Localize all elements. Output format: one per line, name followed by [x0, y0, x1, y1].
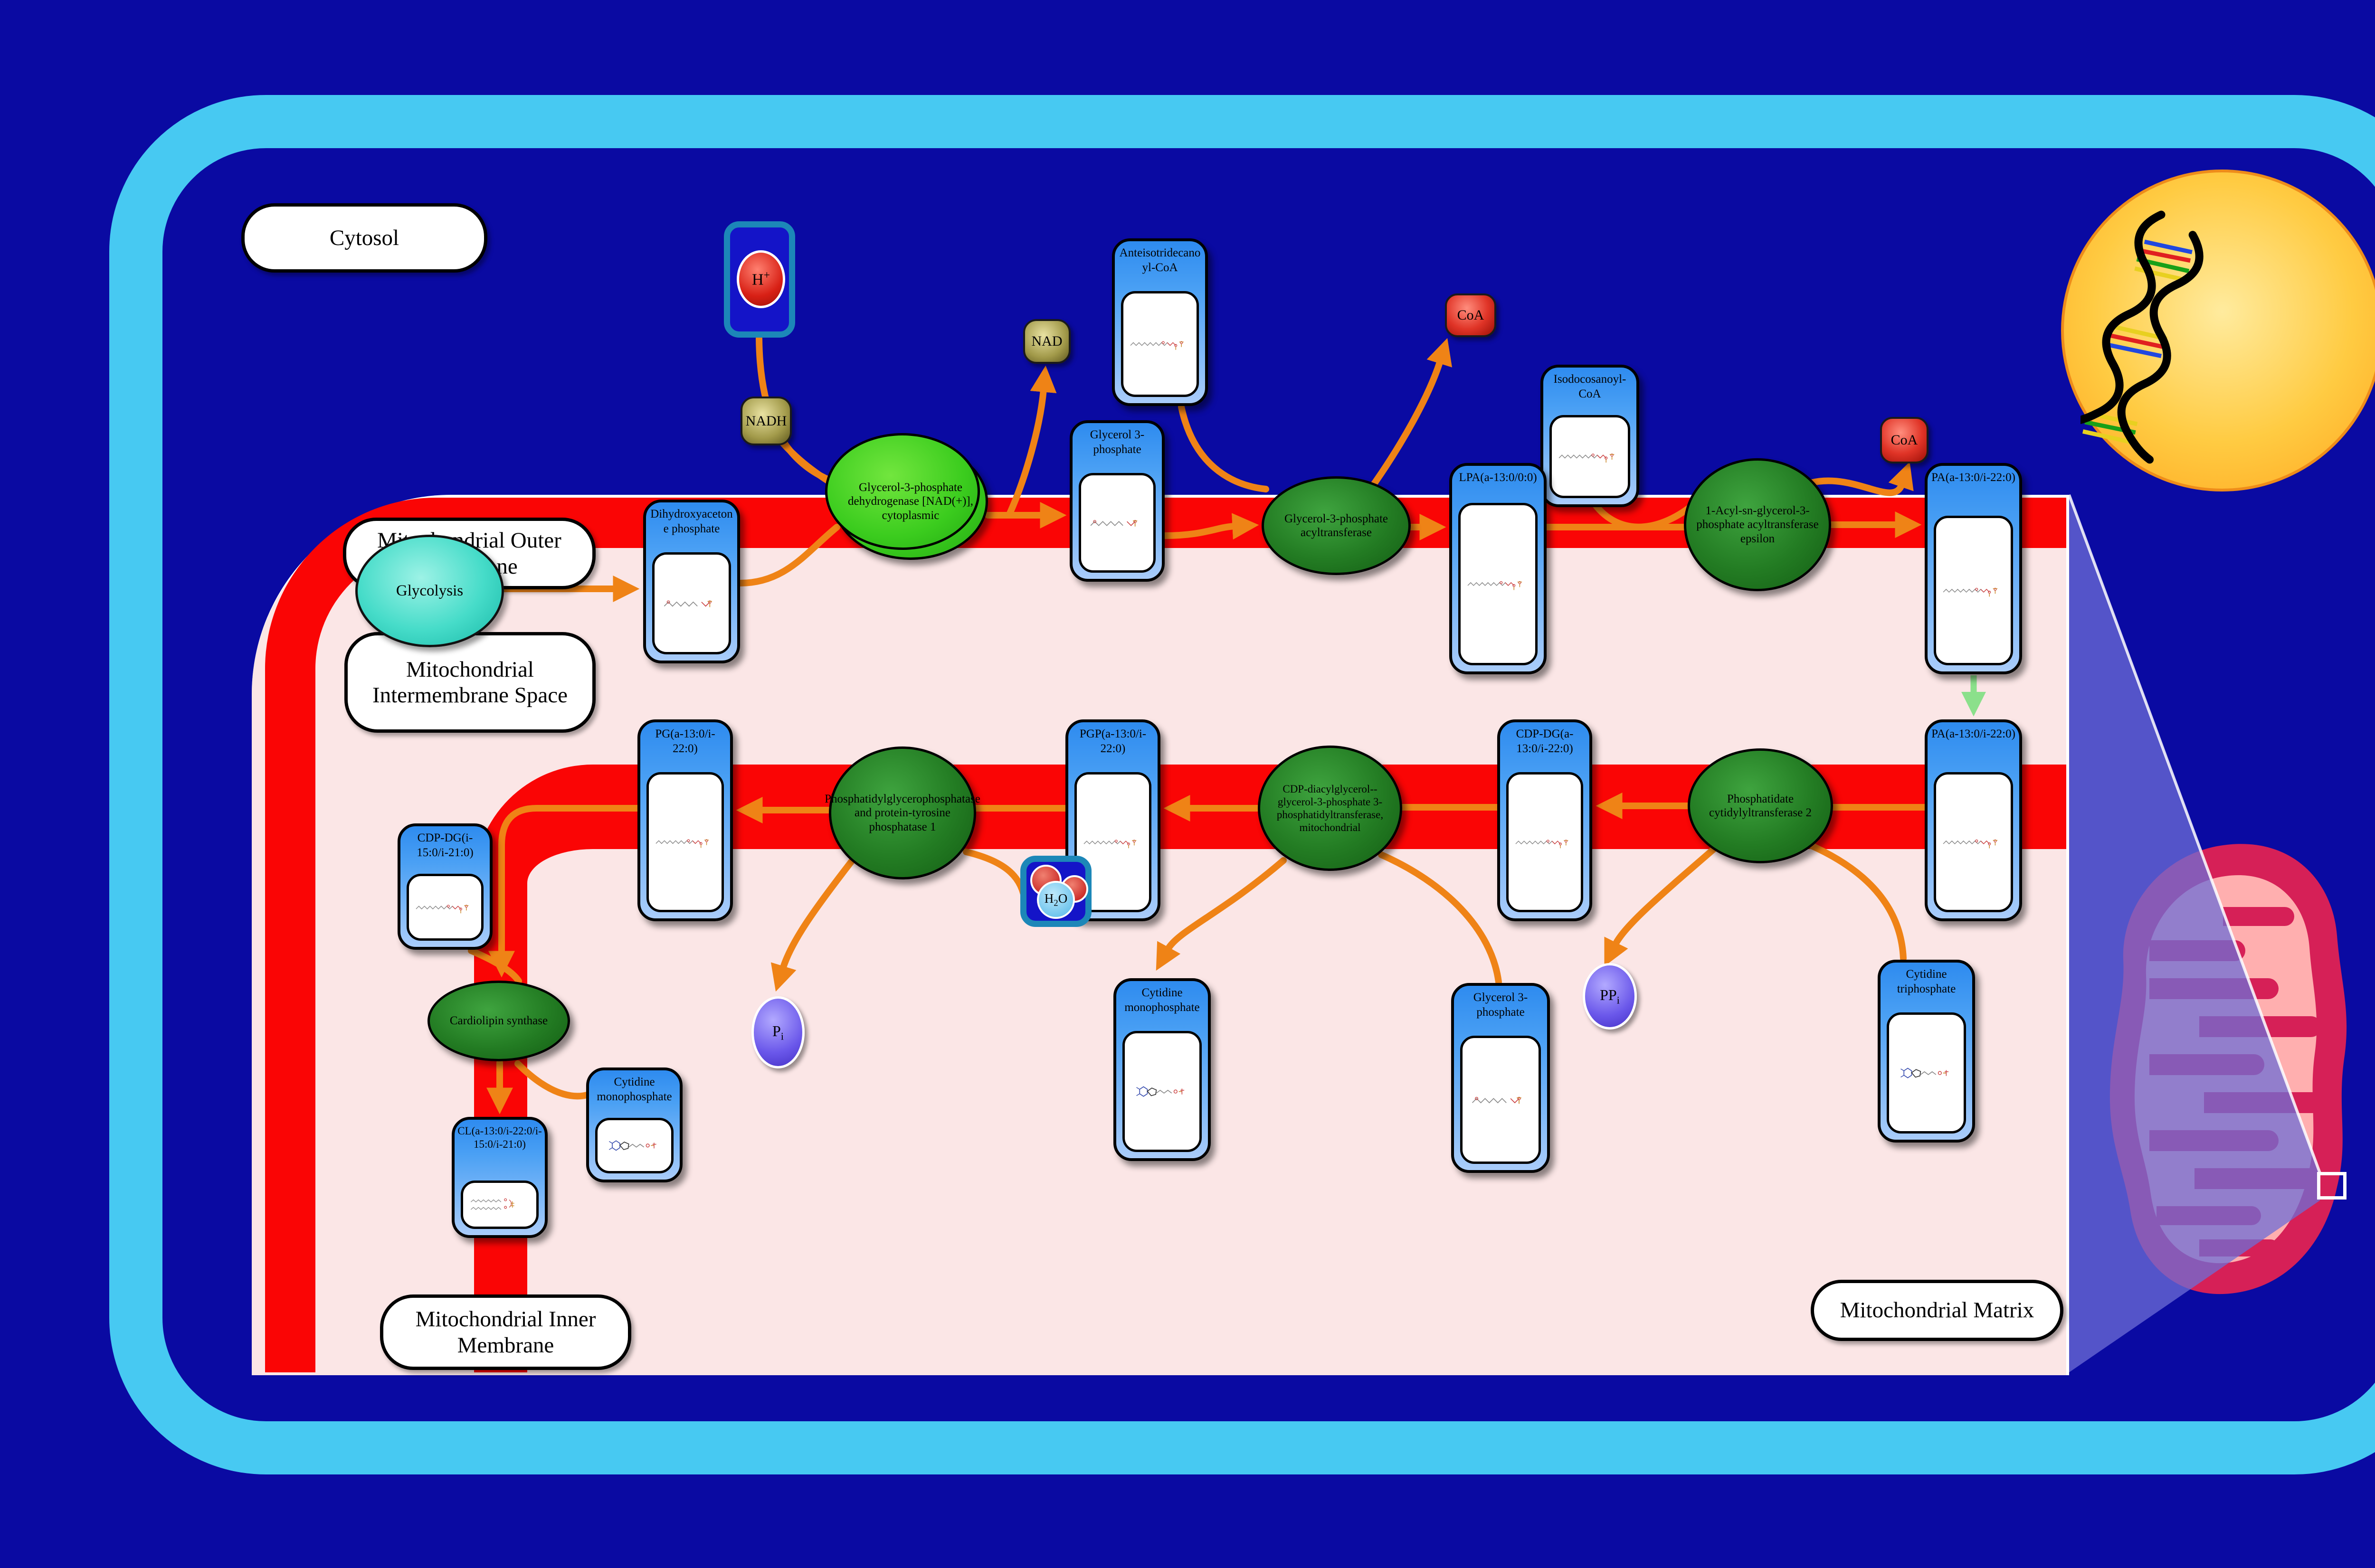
- chemical-structure-icon: [1894, 1062, 1958, 1084]
- metabolite-isodocosanoyl-coa[interactable]: Isodocosanoyl-CoA: [1540, 365, 1639, 507]
- chemical-structure-icon: [1941, 579, 2005, 602]
- cofactor-nadh[interactable]: NADH: [741, 397, 792, 445]
- metabolite-pg[interactable]: PG(a-13:0/i-22:0): [637, 719, 733, 921]
- metabolite-cmp-lower[interactable]: Cytidine monophosphate: [586, 1067, 683, 1182]
- metabolite-lpa[interactable]: LPA(a-13:0/0:0): [1449, 463, 1547, 674]
- chemical-structure-icon: [1129, 333, 1191, 355]
- chemical-structure-icon: [1514, 831, 1576, 853]
- chemical-structure-icon: [603, 1134, 666, 1157]
- metabolite-cdp-dg[interactable]: CDP-DG(a-13:0/i-22:0): [1497, 719, 1592, 921]
- enzyme-gpat[interactable]: Glycerol-3-phosphate acyltransferase: [1262, 476, 1411, 575]
- enzyme-cds2[interactable]: Phosphatidate cytidylyltransferase 2: [1688, 748, 1833, 863]
- water-molecule-icon: H2O: [1037, 881, 1075, 919]
- cofactor-coa-2[interactable]: CoA: [1880, 417, 1928, 463]
- chemical-structure-icon: [660, 592, 723, 614]
- enzyme-pgs1[interactable]: CDP-diacylglycerol--glycerol-3-phosphate…: [1258, 746, 1402, 871]
- region-label-intermembrane-space: Mitochondrial Intermembrane Space: [344, 632, 596, 733]
- metabolite-dhap[interactable]: Dihydroxyacetone phosphate: [643, 500, 740, 663]
- enzyme-gpd1[interactable]: Glycerol-3-phosphate dehydrogenase [NAD(…: [833, 443, 988, 560]
- enzyme-agpat-epsilon[interactable]: 1-Acyl-sn-glycerol-3-phosphate acyltrans…: [1684, 458, 1831, 591]
- chemical-structure-icon: [1468, 1088, 1533, 1111]
- enzyme-ptpmt1[interactable]: Phosphatidylglycerophosphatase and prote…: [829, 746, 976, 879]
- metabolite-ctp[interactable]: Cytidine triphosphate: [1878, 960, 1975, 1143]
- metabolite-anteisotridecanoyl-coa[interactable]: Anteisotridecanoyl-CoA: [1112, 238, 1208, 406]
- cofactor-h-plus-box[interactable]: H+: [724, 221, 795, 338]
- metabolite-g3p-cytosol[interactable]: Glycerol 3-phosphate: [1070, 420, 1165, 582]
- cofactor-h2o-box[interactable]: H2O: [1020, 856, 1092, 927]
- chemical-structure-icon: [1082, 831, 1144, 853]
- cofactor-coa-1[interactable]: CoA: [1445, 293, 1496, 337]
- chemical-structure-icon: [1557, 445, 1623, 468]
- mitochondrion-icon: [2104, 836, 2361, 1311]
- metabolite-g3p-matrix[interactable]: Glycerol 3-phosphate: [1451, 983, 1550, 1173]
- metabolite-pa-outer[interactable]: PA(a-13:0/i-22:0): [1925, 463, 2022, 674]
- chemical-structure-icon: [468, 1194, 531, 1216]
- cofactor-pi[interactable]: Pi: [751, 996, 805, 1068]
- process-node-glycolysis[interactable]: Glycolysis: [355, 535, 504, 647]
- enzyme-cardiolipin-synthase[interactable]: Cardiolipin synthase: [427, 981, 570, 1061]
- pathway-canvas: Cytosol Mitochondrial Outer Membrane Mit…: [0, 0, 2375, 1568]
- region-label-inner-membrane: Mitochondrial Inner Membrane: [380, 1294, 631, 1370]
- h-plus-ion-icon: H+: [737, 250, 785, 308]
- metabolite-cdp-dg-2[interactable]: CDP-DG(i-15:0/i-21:0): [398, 823, 493, 950]
- cell-membrane-border: [109, 95, 2375, 1474]
- metabolite-pa-inner[interactable]: PA(a-13:0/i-22:0): [1925, 719, 2022, 921]
- chemical-structure-icon: [654, 831, 717, 853]
- region-label-cytosol: Cytosol: [241, 203, 487, 273]
- cofactor-ppi[interactable]: PPi: [1583, 963, 1637, 1030]
- cofactor-nad[interactable]: NAD: [1023, 319, 1071, 364]
- region-label-matrix: Mitochondrial Matrix: [1811, 1280, 2063, 1341]
- dna-helix-icon: [2080, 190, 2270, 494]
- metabolite-cmp-upper[interactable]: Cytidine monophosphate: [1113, 978, 1211, 1161]
- metabolite-cardiolipin[interactable]: CL(a-13:0/i-22:0/i-15:0/i-21:0): [452, 1117, 548, 1238]
- chemical-structure-icon: [1466, 573, 1530, 595]
- zoom-target-rectangle: [2317, 1172, 2346, 1200]
- chemical-structure-icon: [1086, 512, 1149, 534]
- chemical-structure-icon: [1130, 1080, 1194, 1103]
- chemical-structure-icon: [1941, 831, 2005, 853]
- chemical-structure-icon: [414, 897, 476, 918]
